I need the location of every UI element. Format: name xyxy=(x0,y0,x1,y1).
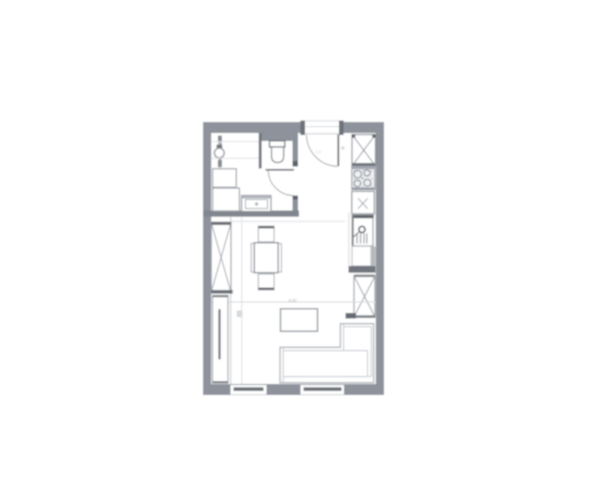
svg-text:4,92: 4,92 xyxy=(289,298,298,303)
svg-text:2,0: 2,0 xyxy=(316,149,322,154)
